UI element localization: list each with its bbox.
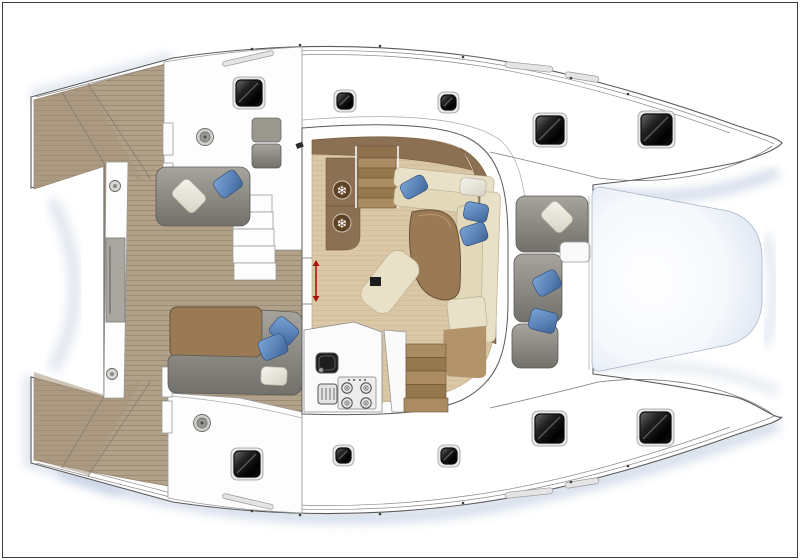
deck-hatch [438,445,460,467]
beam-fitting-icon [110,181,121,192]
helm-seat [252,144,281,168]
deck-hatch [233,77,265,109]
deck-locker [162,401,172,433]
deck-hatch [532,411,567,446]
fridge-snowflake-icon: ❄ [333,181,351,199]
rail-fitting [570,77,573,80]
aft-cockpit-table [170,307,262,357]
rail-fitting [251,510,254,513]
trampoline [592,187,762,371]
hatch-glass [441,95,456,110]
helm-seat-back [252,118,281,142]
galley [304,322,382,412]
rail-fitting [251,48,254,51]
snowflake-glyph: ❄ [337,217,348,232]
burner-center [346,387,348,389]
fitting-pin [113,184,117,188]
pillow-white [261,366,288,385]
pillow-white [459,177,487,197]
beam-fitting-icon [107,369,118,380]
winch-center [204,136,207,139]
hatch-glass [640,412,671,443]
deck-hatch [637,409,674,446]
burner-center [365,387,367,389]
winch-center [201,422,204,425]
faucet-icon [319,368,324,373]
deck-hatch [334,90,356,112]
stern-crossbeam [104,162,128,398]
stairs-to-starboard-hull [356,146,398,208]
burner-center [346,402,348,404]
rail-fitting [379,513,382,516]
fridge-snowflake-icon: ❄ [333,214,351,232]
hatch-glass [236,80,262,106]
rail-fitting [627,465,630,468]
hatch-glass [337,93,353,109]
deck-hatch [333,445,354,466]
hatch-glass [641,114,672,145]
saloon [295,117,528,415]
deck-locker [163,123,173,155]
stove-knob [359,379,361,381]
rail-fitting [462,502,465,505]
rail-fitting [379,45,382,48]
hatch-glass [536,116,564,144]
crossbeam-center [106,238,125,322]
shadow-stern-notch [52,200,75,370]
floor-plan-canvas: Catamaran deck and saloon floor plan — t… [0,0,800,560]
stove-burner-icon [342,398,352,408]
deck-hatch [638,111,675,148]
nav-cabinet [444,326,487,378]
fridge-cabinet [326,158,360,250]
rail-fitting [299,44,302,47]
deck-hatch [438,92,459,113]
catamaran-floor-plan: Catamaran deck and saloon floor plan — t… [0,0,800,560]
stove-knob [348,379,350,381]
winch-icon [194,415,211,432]
stove-knob [353,379,355,381]
hatch-glass [441,448,457,464]
stove-knob [364,379,366,381]
stove-burner-icon [361,383,371,393]
rail-fitting [627,93,630,96]
rail-fitting [570,481,573,484]
burner-center [365,402,367,404]
hatch-glass [234,451,260,477]
stove-burner-icon [342,383,352,393]
forward-table-step [560,242,590,262]
stove-burner-icon [361,398,371,408]
fitting-pin [110,372,114,376]
winch-icon [197,129,214,146]
snowflake-glyph: ❄ [337,184,348,199]
deck-hatch [533,113,567,147]
table-pedestal [370,277,381,286]
rail-fitting [299,514,302,517]
hatch-glass [336,448,351,463]
rail-fitting [462,56,465,59]
hatch-glass [535,414,564,443]
deck-hatch [231,448,263,480]
shadow-trampoline-right [766,235,774,345]
